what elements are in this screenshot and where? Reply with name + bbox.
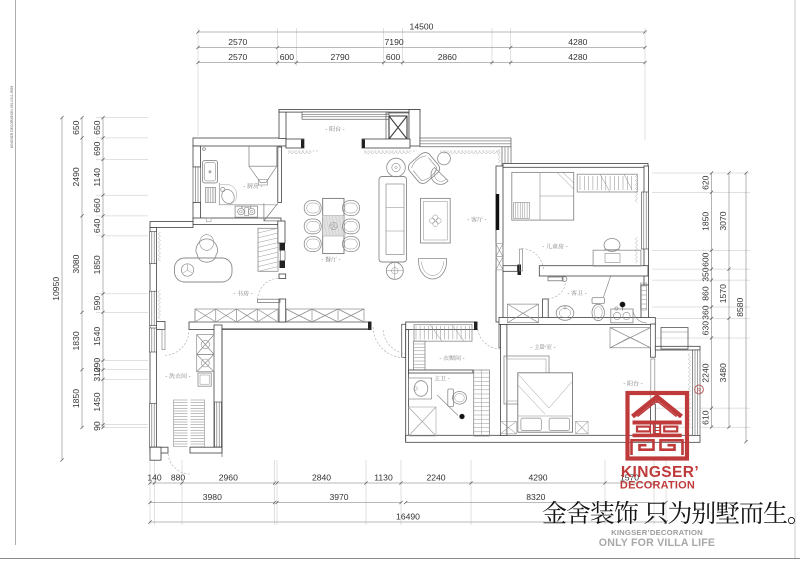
svg-text:360: 360 [701, 305, 711, 320]
svg-text:3080: 3080 [71, 254, 81, 273]
svg-text:1130: 1130 [374, 472, 393, 482]
svg-text:DECORATION: DECORATION [620, 480, 695, 492]
svg-text:- 厨房 -: - 厨房 - [243, 181, 262, 190]
svg-text:KINGSER’: KINGSER’ [621, 464, 699, 481]
svg-text:- 洗衣间 -: - 洗衣间 - [165, 371, 190, 380]
svg-text:3070: 3070 [718, 211, 728, 230]
svg-text:- 儿童房 -: - 儿童房 - [542, 242, 567, 251]
svg-text:610: 610 [701, 410, 711, 425]
svg-text:金舍装饰 只为别墅而生。: 金舍装饰 只为别墅而生。 [542, 494, 800, 530]
svg-text:1830: 1830 [71, 331, 81, 350]
svg-text:3970: 3970 [329, 492, 348, 502]
svg-text:4290: 4290 [528, 472, 547, 482]
svg-text:16490: 16490 [396, 511, 420, 521]
svg-text:90: 90 [92, 421, 102, 431]
svg-text:1540: 1540 [92, 327, 102, 346]
svg-text:880: 880 [171, 472, 186, 482]
svg-text:3480: 3480 [718, 363, 728, 382]
svg-text:140: 140 [147, 472, 162, 482]
svg-text:7190: 7190 [385, 37, 404, 47]
svg-text:- 客卫 -: - 客卫 - [567, 288, 586, 297]
svg-text:2570: 2570 [228, 37, 247, 47]
svg-text:3980: 3980 [203, 492, 222, 502]
svg-text:- 阳台 -: - 阳台 - [623, 379, 642, 388]
svg-text:2790: 2790 [330, 52, 349, 62]
svg-text:1850: 1850 [92, 255, 102, 274]
svg-text:8580: 8580 [735, 298, 745, 317]
svg-text:R: R [697, 387, 702, 394]
svg-text:KINGSER’DECORATION: KINGSER’DECORATION [611, 528, 703, 537]
svg-text:10950: 10950 [51, 277, 61, 301]
svg-text:- 餐厅 -: - 餐厅 - [321, 255, 340, 264]
svg-text:600: 600 [386, 52, 401, 62]
svg-text:2490: 2490 [71, 167, 81, 186]
svg-text:620: 620 [701, 175, 711, 190]
svg-text:1450: 1450 [92, 392, 102, 411]
svg-text:1570: 1570 [718, 284, 728, 303]
svg-text:4280: 4280 [568, 37, 587, 47]
svg-text:350: 350 [701, 267, 711, 282]
svg-text:2240: 2240 [426, 472, 445, 482]
svg-text:- 客厅 -: - 客厅 - [467, 215, 486, 224]
svg-text:- 衣帽间 -: - 衣帽间 - [439, 353, 464, 362]
svg-text:660: 660 [92, 198, 102, 213]
svg-text:2240: 2240 [701, 363, 711, 382]
svg-text:650: 650 [71, 120, 81, 135]
svg-text:- 主卧室 -: - 主卧室 - [530, 342, 555, 351]
svg-text:630: 630 [701, 321, 711, 336]
svg-text:- 主卫 -: - 主卫 - [430, 374, 449, 383]
svg-text:690: 690 [92, 141, 102, 156]
svg-text:600: 600 [701, 252, 711, 267]
svg-text:590: 590 [92, 296, 102, 311]
svg-text:2860: 2860 [438, 52, 457, 62]
svg-text:600: 600 [280, 52, 295, 62]
svg-text:1850: 1850 [701, 212, 711, 231]
svg-text:650: 650 [92, 120, 102, 135]
svg-text:2960: 2960 [219, 472, 238, 482]
svg-text:1850: 1850 [71, 389, 81, 408]
svg-text:KINGSER DECORATION 195-0311-95: KINGSER DECORATION 195-0311-9599 [10, 86, 14, 148]
svg-text:640: 640 [92, 219, 102, 234]
svg-text:1140: 1140 [92, 168, 102, 187]
svg-text:310: 310 [92, 367, 102, 382]
svg-text:14500: 14500 [410, 21, 434, 31]
svg-text:- 书房 -: - 书房 - [233, 289, 252, 298]
svg-text:2840: 2840 [312, 472, 331, 482]
svg-text:4280: 4280 [568, 52, 587, 62]
svg-text:2570: 2570 [228, 52, 247, 62]
svg-text:ONLY FOR VILLA LIFE: ONLY FOR VILLA LIFE [599, 537, 715, 549]
svg-text:860: 860 [701, 286, 711, 301]
svg-text:- 阳台 -: - 阳台 - [325, 124, 344, 133]
